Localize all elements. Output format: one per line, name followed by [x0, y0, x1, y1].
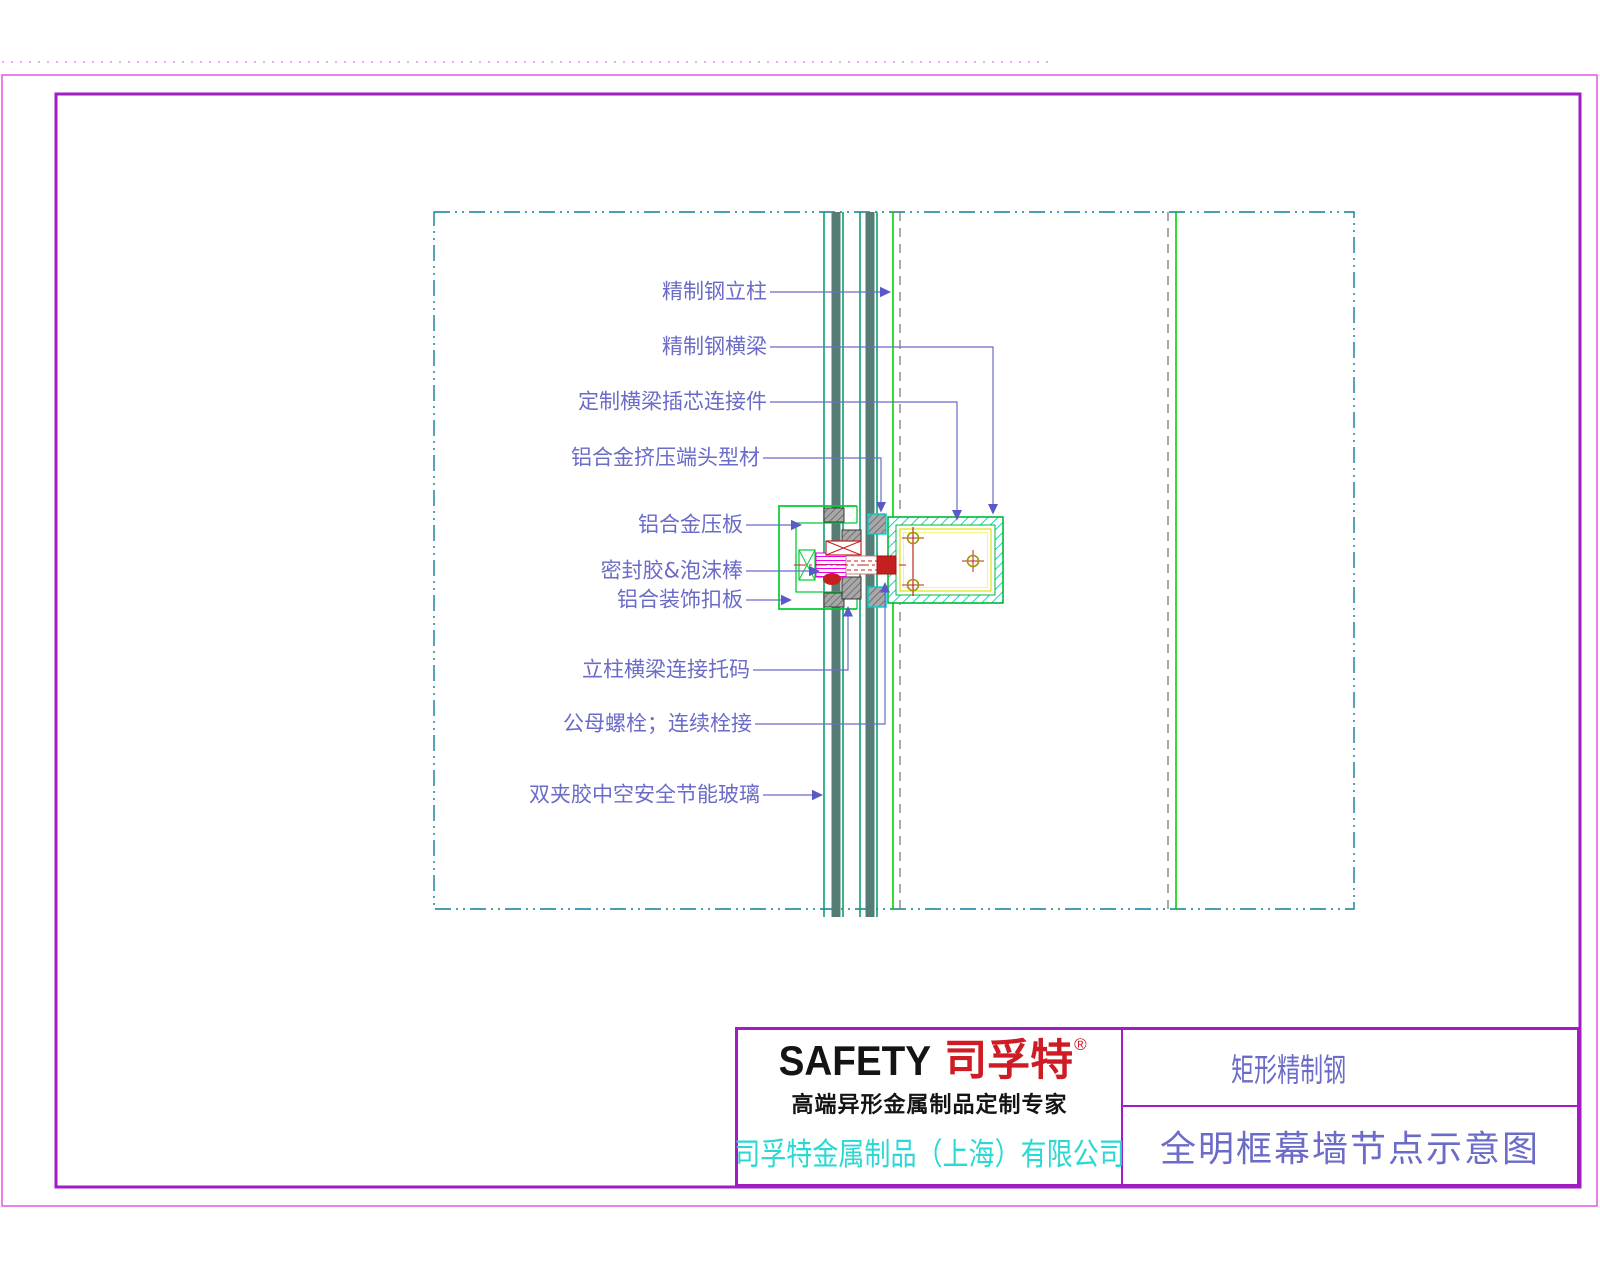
- series-title-cell: 矩形精制钢: [1123, 1030, 1577, 1107]
- title-block-logo-cell: SAFETY 司孚特 ® 高端异形金属制品定制专家 司孚特金属制品（上海）有限公…: [738, 1030, 1123, 1184]
- title-block: SAFETY 司孚特 ® 高端异形金属制品定制专家 司孚特金属制品（上海）有限公…: [735, 1027, 1580, 1187]
- logo-cjk-text: 司孚特: [944, 1040, 1073, 1083]
- company-name: 司孚特金属制品（上海）有限公司: [734, 1129, 1125, 1174]
- label-steel-transom: 精制钢横梁: [662, 337, 767, 358]
- logo-latin-text: SAFETY: [779, 1040, 931, 1082]
- title-block-titles-cell: 矩形精制钢 全明框幕墙节点示意图: [1123, 1030, 1577, 1184]
- label-insert-connector: 定制横梁插芯连接件: [578, 392, 767, 413]
- series-title: 矩形精制钢: [1231, 1045, 1346, 1091]
- label-decorative-cap-plate: 铝合装饰扣板: [617, 590, 743, 611]
- label-aluminum-pressure-plate: 铝合金压板: [638, 515, 743, 536]
- label-connection-bracket: 立柱横梁连接托码: [582, 660, 750, 681]
- drawing-title-cell: 全明框幕墙节点示意图: [1123, 1107, 1577, 1184]
- cad-sheet-page: 精制钢立柱 精制钢横梁 定制横梁插芯连接件 铝合金挤压端头型材 铝合金压板 密封…: [0, 0, 1600, 1280]
- label-aluminum-end-profile: 铝合金挤压端头型材: [571, 448, 760, 469]
- label-male-female-bolts: 公母螺栓；连续栓接: [563, 714, 752, 735]
- label-insulated-glass: 双夹胶中空安全节能玻璃: [529, 785, 760, 806]
- logo-tagline: 高端异形金属制品定制专家: [791, 1087, 1067, 1119]
- inner-page-border: [56, 94, 1580, 1187]
- leader-end-profile: [763, 458, 881, 503]
- transom-section-box: [888, 517, 1003, 603]
- label-sealant-foam-rod: 密封胶&泡沫棒: [601, 561, 743, 582]
- drawing-title: 全明框幕墙节点示意图: [1160, 1120, 1540, 1172]
- registered-trademark-icon: ®: [1074, 1036, 1087, 1053]
- label-steel-mullion: 精制钢立柱: [662, 282, 767, 303]
- leader-insert-connector: [770, 402, 957, 510]
- company-logo: SAFETY 司孚特 ®: [772, 1040, 1086, 1083]
